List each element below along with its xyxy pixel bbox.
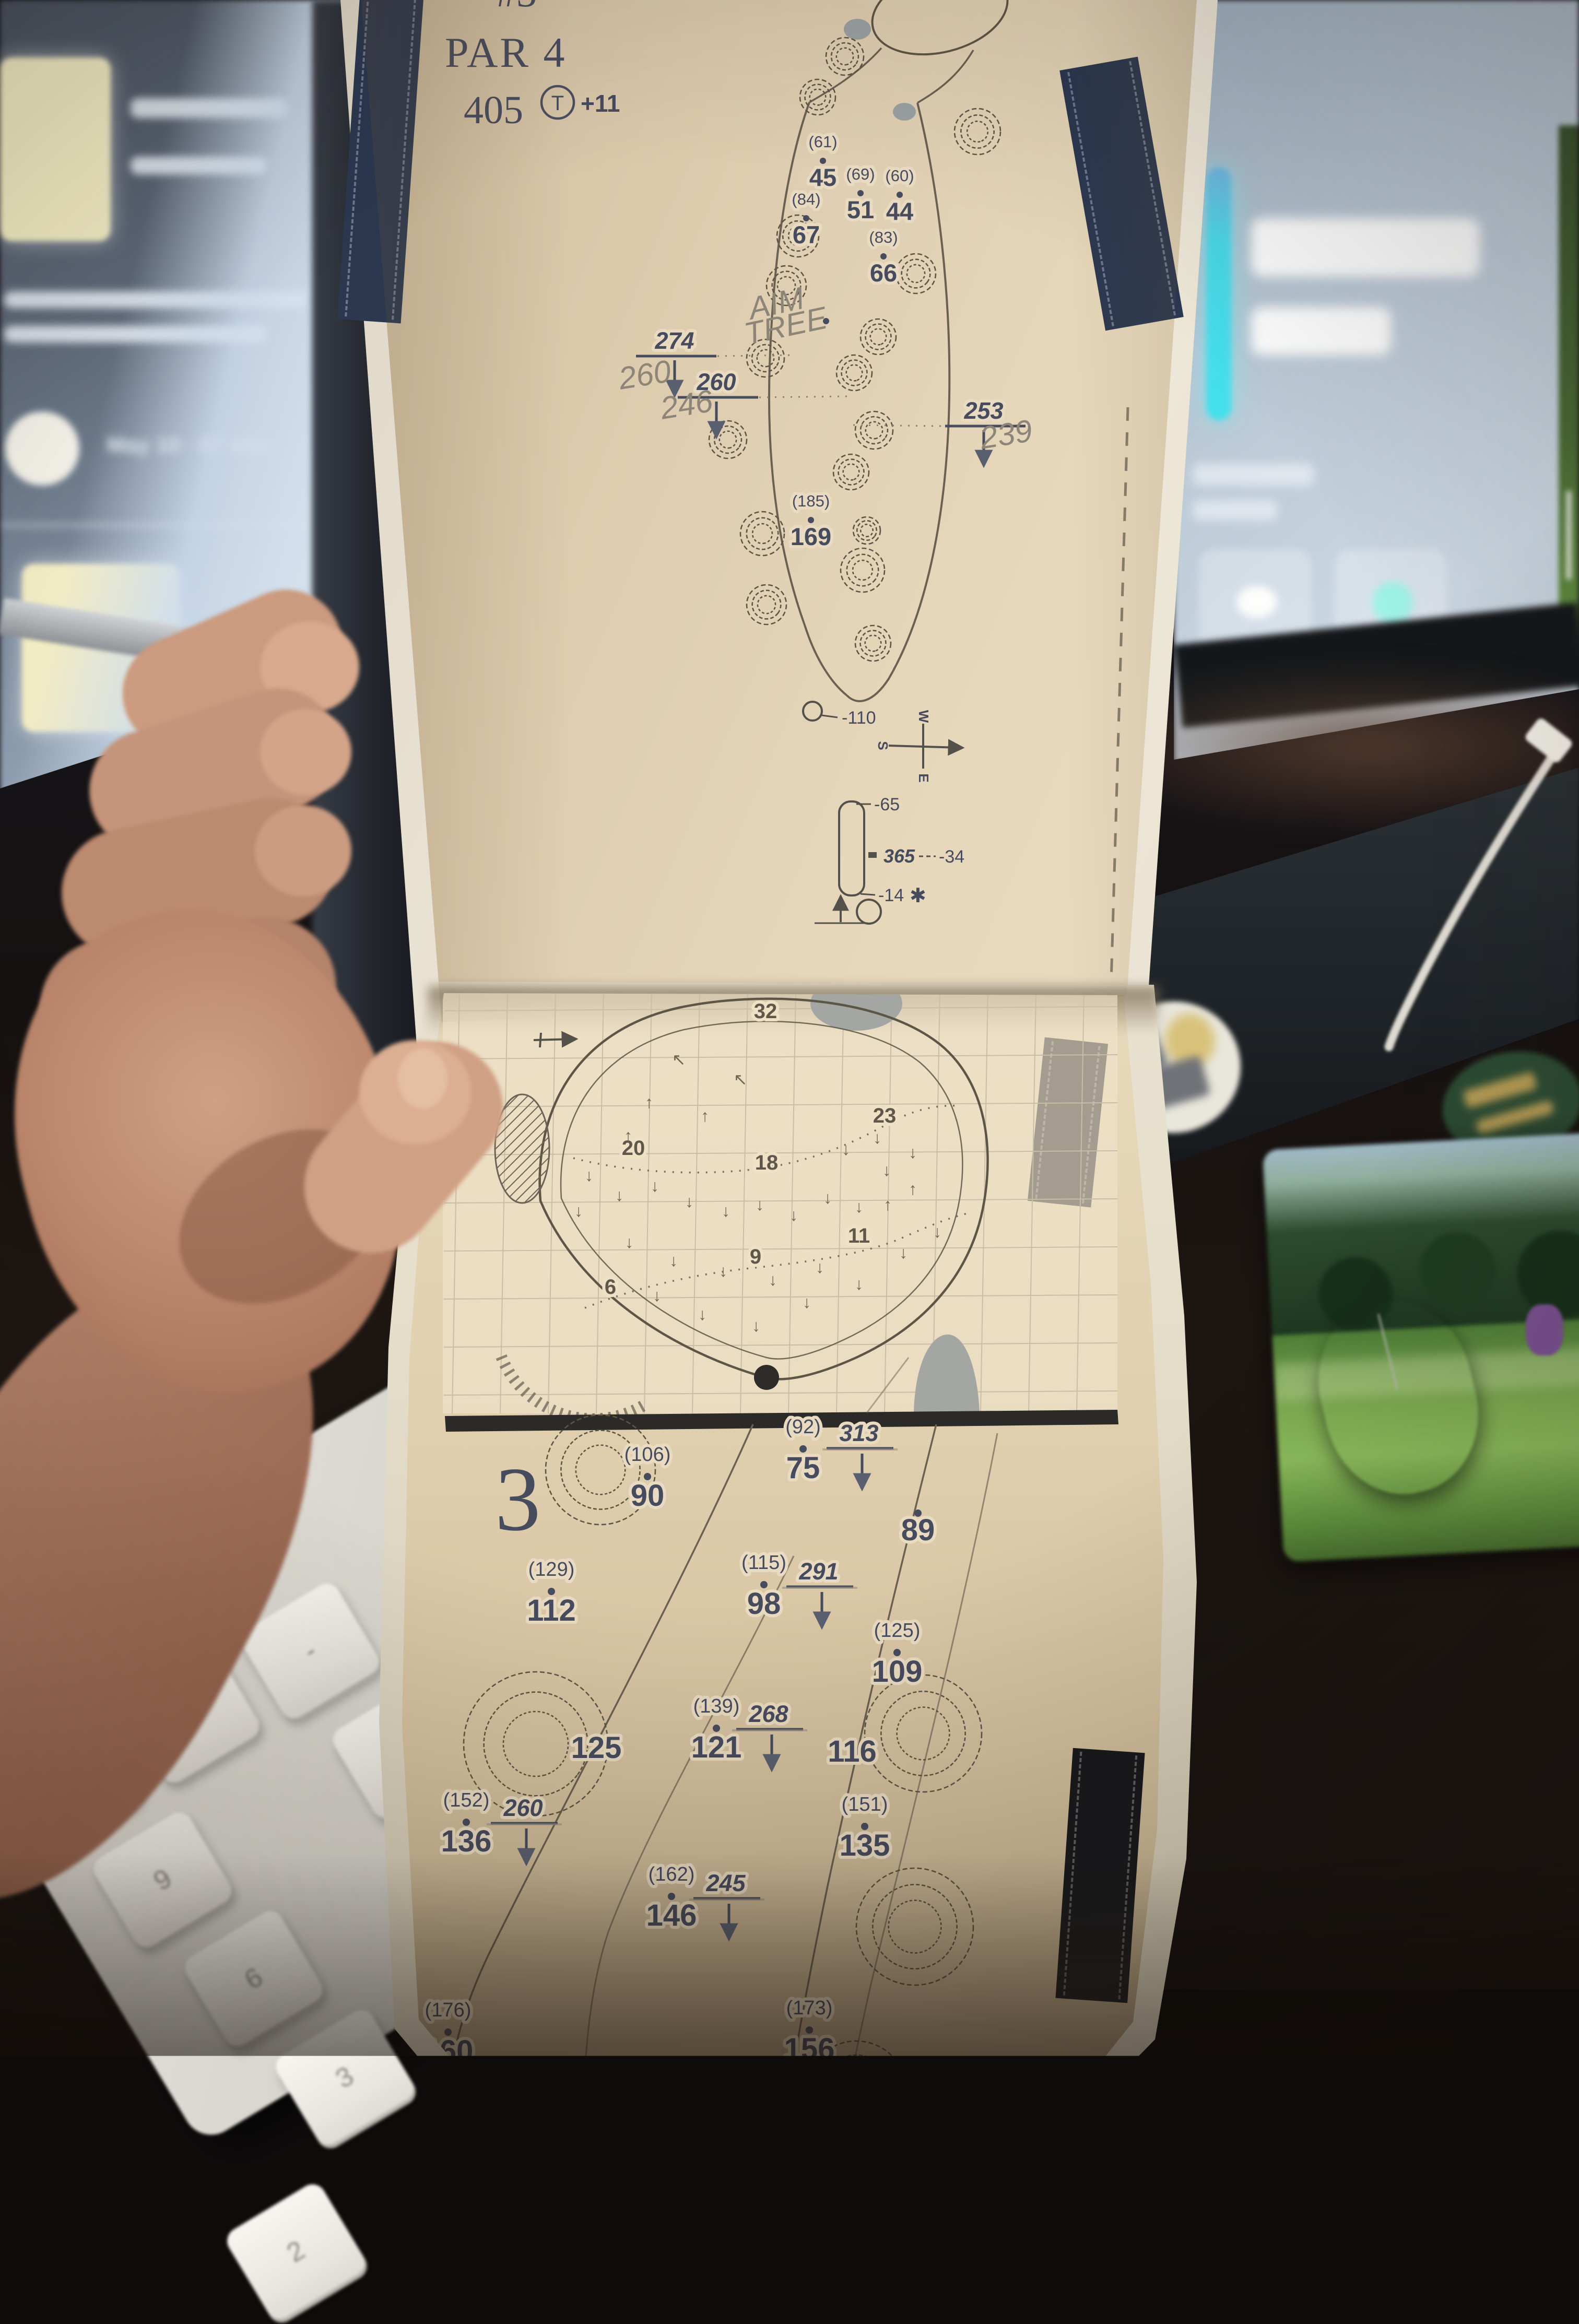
slope-arrow: ↑ bbox=[909, 1179, 917, 1198]
yardage-paren: (92) bbox=[785, 1416, 821, 1438]
front-of-green-dot bbox=[754, 1365, 779, 1390]
slope-arrow: ↖ bbox=[672, 1050, 686, 1069]
carry-distance: 260 bbox=[503, 1795, 543, 1821]
slope-arrow: ↓ bbox=[685, 1192, 693, 1211]
slope-arrow: ↓ bbox=[669, 1251, 678, 1270]
slope-arrow: ↖ bbox=[734, 1070, 748, 1089]
carry-distance: 268 bbox=[748, 1701, 788, 1727]
page-shading bbox=[361, 0, 1197, 1023]
carry-distance: 291 bbox=[798, 1558, 838, 1585]
slope-arrow: ↓ bbox=[803, 1293, 811, 1312]
slope-arrow: ↓ bbox=[823, 1188, 832, 1207]
yardage-paren: (139) bbox=[693, 1695, 740, 1717]
slope-arrow: ↓ bbox=[651, 1176, 659, 1195]
slope-arrow: ↓ bbox=[769, 1270, 777, 1289]
yardage-main: 89 bbox=[901, 1513, 935, 1547]
yardage-paren: (115) bbox=[741, 1552, 786, 1574]
hole-overview-map: #3 PAR 4 405 T +11 -110 W S bbox=[361, 0, 1197, 1023]
contour-label: 18 bbox=[755, 1151, 779, 1174]
landing-label: 125 bbox=[571, 1731, 622, 1765]
slope-arrow: ↓ bbox=[719, 1261, 727, 1280]
slope-arrow: ↓ bbox=[585, 1166, 593, 1185]
yardage-main: 98 bbox=[747, 1587, 781, 1621]
yardage-main: 135 bbox=[840, 1828, 890, 1862]
slope-arrow: ↓ bbox=[842, 1140, 850, 1159]
slope-arrow: ↑ bbox=[883, 1195, 892, 1214]
slope-arrow: ↓ bbox=[855, 1197, 863, 1216]
landing-label: 89 bbox=[901, 1509, 935, 1547]
slope-arrow: ↓ bbox=[756, 1195, 764, 1214]
slope-arrow: ↓ bbox=[752, 1316, 760, 1335]
slope-arrow: ↑ bbox=[624, 1126, 632, 1145]
slope-arrow: ↓ bbox=[722, 1201, 730, 1220]
slope-arrow: ↑ bbox=[701, 1106, 709, 1125]
slope-arrow: ↓ bbox=[625, 1233, 633, 1252]
fingertip bbox=[255, 805, 351, 896]
hatched-oval-marker bbox=[495, 1094, 549, 1203]
slope-arrow: ↓ bbox=[909, 1143, 917, 1162]
page-shading bbox=[397, 1880, 1180, 2105]
slope-arrow: ↓ bbox=[615, 1186, 623, 1205]
yardage-main: 90 bbox=[631, 1479, 665, 1513]
thumbnail bbox=[398, 1048, 447, 1108]
hole-number: 3 bbox=[495, 1448, 541, 1550]
slope-arrow: ↓ bbox=[882, 1161, 891, 1179]
slope-arrow: ↓ bbox=[698, 1305, 706, 1324]
yardage-main: 121 bbox=[691, 1730, 742, 1764]
tree-icon bbox=[864, 1674, 982, 1792]
yardage-main: 116 bbox=[828, 1735, 877, 1768]
slope-arrow: ↓ bbox=[789, 1206, 798, 1224]
key-2: 2 bbox=[222, 2179, 370, 2324]
slope-arrow: ↓ bbox=[873, 1128, 881, 1147]
landing-label: 116 bbox=[828, 1735, 877, 1768]
contour-label: 9 bbox=[750, 1245, 761, 1268]
landing-label: (106)90 bbox=[624, 1444, 671, 1513]
yardage-main: 125 bbox=[571, 1731, 622, 1765]
carry-distance: 313 bbox=[839, 1420, 878, 1446]
contour-label: 11 bbox=[848, 1224, 870, 1247]
contour-label: 32 bbox=[754, 1000, 777, 1023]
yardage-paren: (125) bbox=[874, 1620, 921, 1642]
yardage-paren: (152) bbox=[443, 1789, 490, 1811]
yardage-main: 75 bbox=[786, 1451, 820, 1485]
contour-label: 23 bbox=[873, 1104, 897, 1127]
landing-label: (151)135 bbox=[840, 1794, 890, 1862]
slope-arrow: ↓ bbox=[816, 1258, 824, 1277]
yardage-main: 136 bbox=[441, 1824, 492, 1858]
fingertip bbox=[260, 709, 351, 795]
slope-arrow: ↓ bbox=[653, 1286, 661, 1305]
slope-arrow: ↓ bbox=[855, 1275, 863, 1293]
slope-arrow: ↑ bbox=[645, 1093, 653, 1112]
slope-arrow: ↓ bbox=[933, 1222, 941, 1241]
photo-scene: May 10 · 67 min Happy da Before Andy and… bbox=[0, 0, 1579, 2105]
landing-label: (115)98291 bbox=[741, 1552, 857, 1624]
yardage-paren: (151) bbox=[842, 1794, 888, 1815]
yardage-paren: (106) bbox=[624, 1444, 671, 1466]
green-detail-and-landing-map: 322320181196 ↖↖↑↑↑↑↑↓↓↓↓↓↓↓↓↓↓↓↓↓↓↓↓↓↓↓↓… bbox=[397, 976, 1180, 2105]
landing-label: (139)121268 bbox=[691, 1695, 807, 1767]
yardage-main: 109 bbox=[872, 1655, 923, 1689]
landing-label: (129)112 bbox=[527, 1559, 576, 1627]
landing-label: (152)136260 bbox=[441, 1789, 562, 1861]
contour-label: 6 bbox=[605, 1276, 616, 1299]
slope-arrow: ↓ bbox=[574, 1201, 583, 1220]
slope-arrow: ↓ bbox=[899, 1243, 908, 1262]
yardage-main: 112 bbox=[527, 1594, 576, 1627]
yardage-paren: (129) bbox=[528, 1559, 575, 1580]
